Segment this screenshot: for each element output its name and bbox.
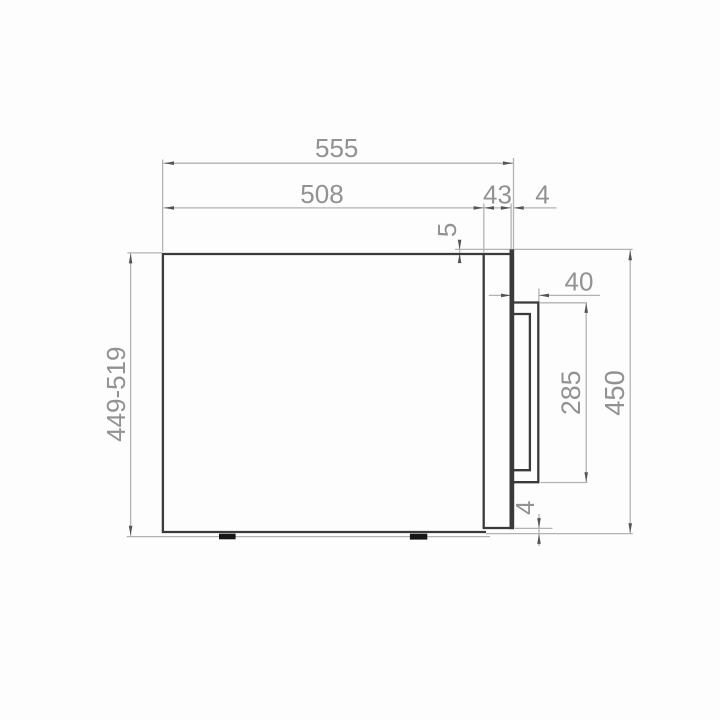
- svg-text:508: 508: [300, 179, 343, 209]
- svg-text:555: 555: [315, 133, 358, 163]
- svg-text:5: 5: [432, 223, 462, 237]
- svg-text:449-519: 449-519: [101, 346, 131, 441]
- svg-text:40: 40: [565, 266, 594, 296]
- svg-text:285: 285: [556, 370, 586, 415]
- svg-text:4: 4: [535, 180, 549, 210]
- svg-text:4: 4: [510, 501, 540, 515]
- svg-text:450: 450: [599, 370, 630, 416]
- svg-text:43: 43: [483, 180, 512, 210]
